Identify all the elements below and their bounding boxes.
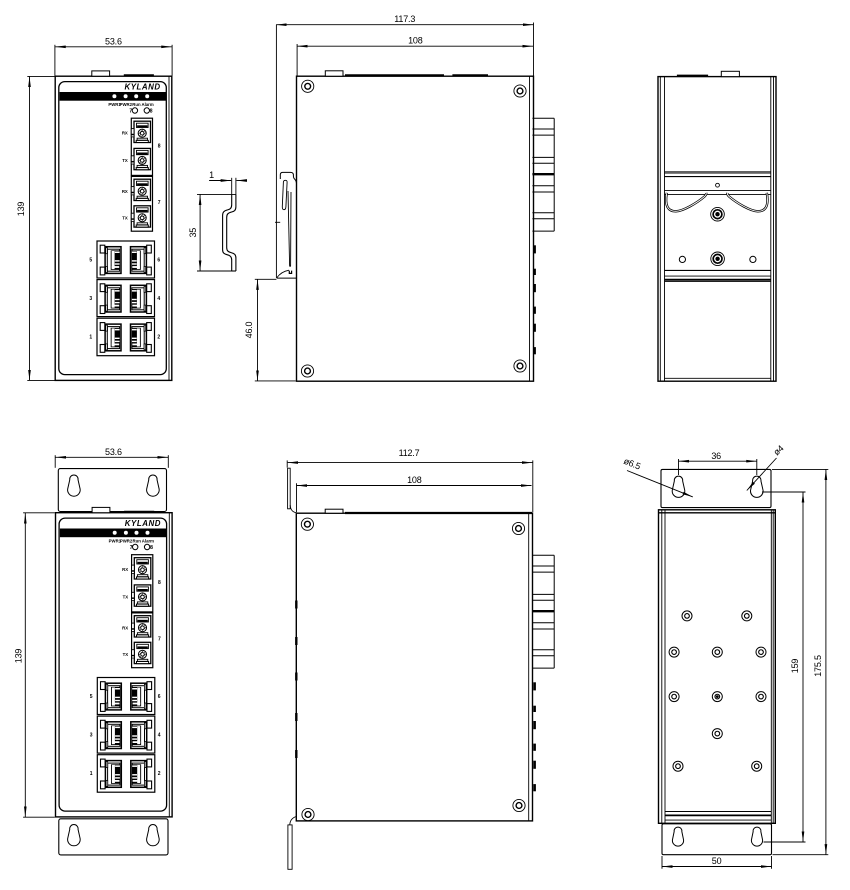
- svg-text:TX: TX: [122, 215, 128, 220]
- svg-text:4: 4: [157, 296, 160, 302]
- svg-text:6: 6: [157, 257, 160, 263]
- svg-text:PWR2: PWR2: [120, 102, 133, 107]
- svg-text:2: 2: [157, 335, 160, 341]
- svg-text:117.3: 117.3: [394, 14, 415, 24]
- svg-text:46.0: 46.0: [244, 321, 254, 338]
- svg-text:8: 8: [150, 109, 153, 115]
- svg-text:5: 5: [89, 257, 92, 263]
- svg-text:53.6: 53.6: [105, 447, 122, 457]
- svg-text:Run: Run: [132, 102, 141, 107]
- svg-text:175.5: 175.5: [813, 655, 823, 677]
- svg-text:112.7: 112.7: [399, 448, 420, 458]
- svg-text:108: 108: [408, 36, 423, 46]
- svg-text:50: 50: [712, 856, 722, 866]
- svg-text:139: 139: [16, 202, 26, 217]
- svg-text:RX: RX: [122, 131, 128, 136]
- svg-text:36: 36: [711, 451, 721, 461]
- svg-text:35: 35: [188, 228, 198, 238]
- svg-text:RX: RX: [122, 189, 128, 194]
- svg-text:TX: TX: [122, 158, 128, 163]
- svg-text:7: 7: [158, 200, 161, 206]
- svg-text:1: 1: [209, 170, 214, 180]
- svg-text:KYLAND: KYLAND: [125, 83, 161, 92]
- svg-text:159: 159: [790, 659, 800, 674]
- svg-text:53.6: 53.6: [105, 36, 122, 46]
- svg-text:Alarm: Alarm: [142, 102, 154, 107]
- svg-text:1: 1: [89, 335, 92, 341]
- svg-text:8: 8: [158, 144, 161, 150]
- svg-text:139: 139: [14, 649, 24, 664]
- svg-text:108: 108: [407, 475, 422, 485]
- svg-text:3: 3: [89, 296, 92, 302]
